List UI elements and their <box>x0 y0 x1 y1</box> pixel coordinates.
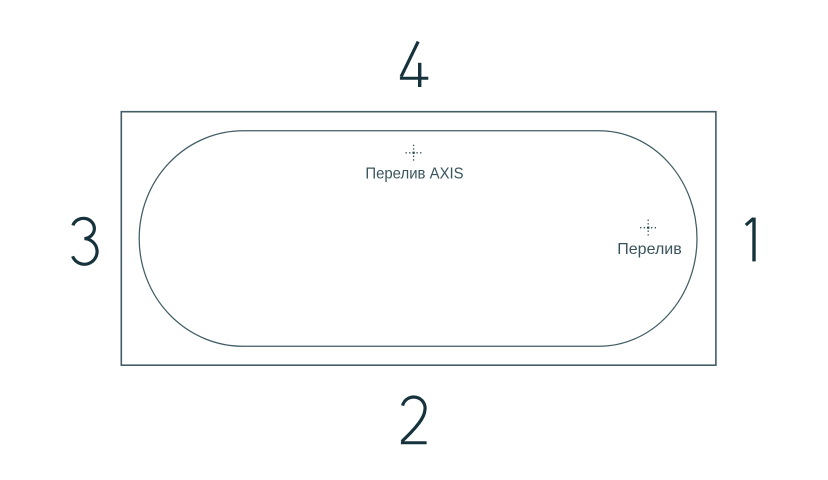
svg-text:Перелив AXIS: Перелив AXIS <box>365 166 463 183</box>
svg-text:Перелив: Перелив <box>617 241 681 258</box>
